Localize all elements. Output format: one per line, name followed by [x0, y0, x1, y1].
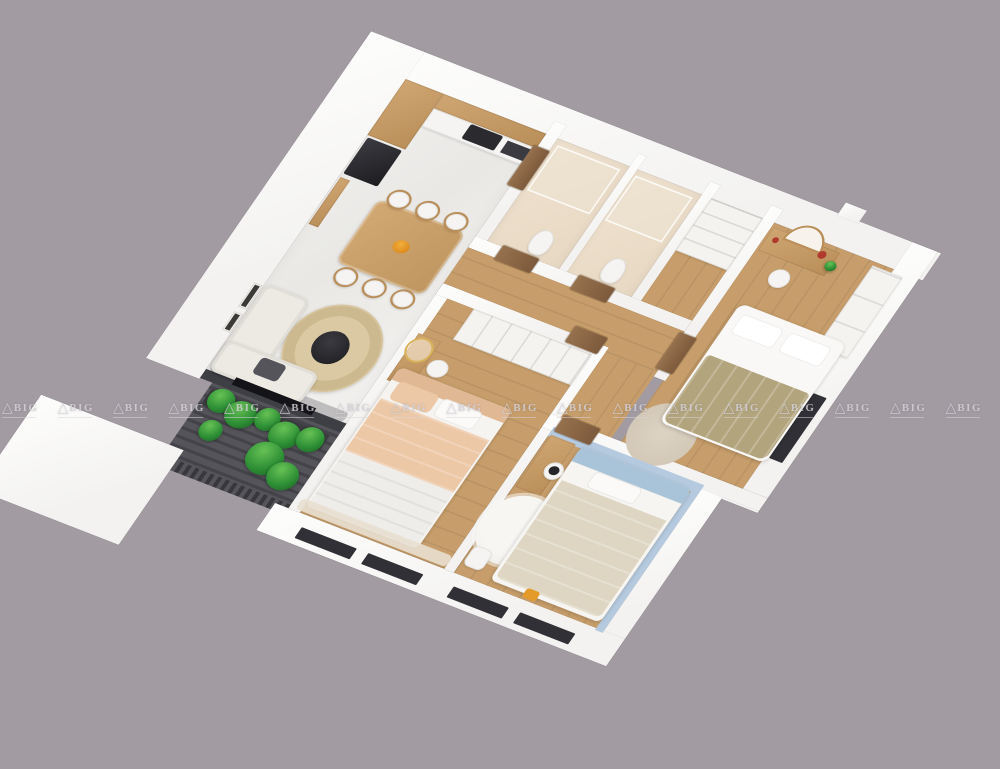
watermark-tagline-bar — [890, 417, 924, 418]
watermark-tagline-bar — [113, 417, 147, 418]
master-pillow — [730, 313, 785, 349]
watermark-triangle-icon: △ — [2, 400, 13, 414]
apartment-plan — [118, 62, 916, 676]
watermark-logo: △BIG — [835, 400, 891, 434]
watermark-triangle-icon: △ — [946, 400, 957, 414]
watermark-text: BIG — [846, 403, 871, 414]
watermark-triangle-icon: △ — [835, 400, 846, 414]
exterior-fin-wall — [0, 395, 184, 545]
watermark-tagline-bar — [835, 417, 869, 418]
watermark-text: BIG — [957, 403, 982, 414]
master-pillow — [777, 332, 832, 368]
watermark-triangle-icon: △ — [113, 400, 124, 414]
render-canvas: △BIG△BIG△BIG△BIG△BIG△BIG△BIG△BIG△BIG△BIG… — [0, 0, 1000, 769]
watermark-triangle-icon: △ — [890, 400, 901, 414]
watermark-text: BIG — [125, 403, 150, 414]
watermark-text: BIG — [902, 403, 927, 414]
watermark-logo: △BIG — [890, 400, 946, 434]
watermark-logo: △BIG — [946, 400, 1000, 434]
watermark-tagline-bar — [946, 417, 980, 418]
